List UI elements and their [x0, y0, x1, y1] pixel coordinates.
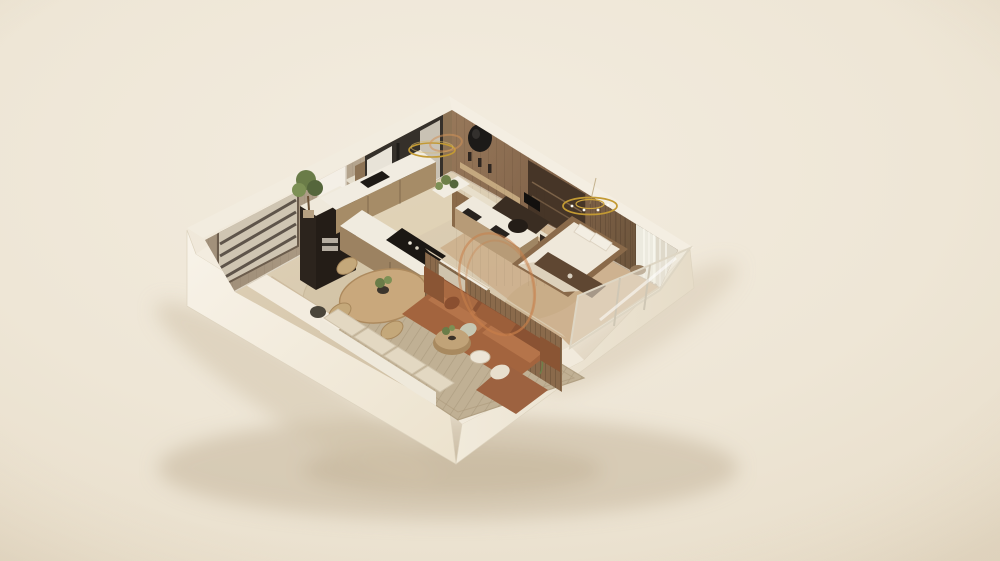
- render-canvas: [0, 0, 1000, 561]
- vignette-overlay: [0, 0, 1000, 561]
- apartment-cutaway-render: [0, 0, 1000, 561]
